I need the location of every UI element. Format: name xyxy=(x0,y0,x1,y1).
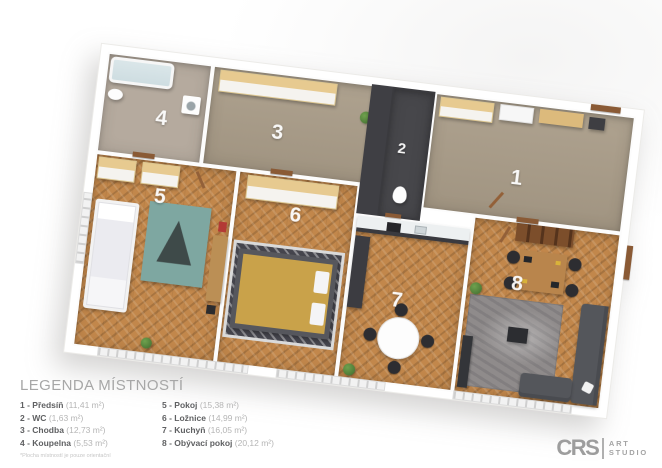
floor-plan-3d: 4 3 2 1 xyxy=(63,43,645,419)
logo-initials: CRS xyxy=(556,437,598,459)
bathtub xyxy=(108,56,175,90)
legend-item: 5 - Pokoj (15,38 m²) xyxy=(162,399,290,412)
entry-door-leaf xyxy=(488,192,504,209)
placemat xyxy=(523,256,532,263)
room-obyvaci-pokoj: 8 xyxy=(452,216,621,410)
desk-chair xyxy=(206,304,216,314)
legend-item-label: 7 - Kuchyň xyxy=(162,425,205,435)
hall-wardrobe xyxy=(218,70,338,106)
stove xyxy=(386,222,401,233)
entry-cabinet xyxy=(498,104,534,124)
legend-title: LEGENDA MÍSTNOSTÍ xyxy=(20,377,290,394)
entry-wardrobe xyxy=(438,97,494,123)
legend-item: 6 - Ložnice (14,99 m²) xyxy=(162,412,290,425)
wc-toilet xyxy=(392,186,408,205)
entry-shoe-rack xyxy=(588,117,605,131)
legend-item-label: 6 - Ložnice xyxy=(162,413,206,423)
mountain-rug xyxy=(140,201,211,288)
logo-divider xyxy=(602,438,604,459)
room-number-4: 4 xyxy=(154,106,169,131)
placemat xyxy=(551,282,560,289)
legend-column-2: 5 - Pokoj (15,38 m²) 6 - Ložnice (14,99 … xyxy=(162,399,290,449)
room-number-7: 7 xyxy=(389,288,404,313)
dining-chair xyxy=(363,327,377,341)
legend-item-area: (1,63 m²) xyxy=(49,413,83,423)
logo-wordmark: ART STUDIO xyxy=(609,439,648,458)
legend-item-area: (20,12 m²) xyxy=(235,438,274,448)
room-number-8: 8 xyxy=(510,272,525,297)
sofa-chaise xyxy=(518,373,573,403)
room-legend: LEGENDA MÍSTNOSTÍ 1 - Předsíň (11,41 m²)… xyxy=(20,377,290,459)
legend-item-label: 3 - Chodba xyxy=(20,425,64,435)
room-kuchyn: 7 xyxy=(336,213,472,392)
room-pokoj: 5 xyxy=(72,152,238,363)
legend-item: 1 - Předsíň (11,41 m²) xyxy=(20,399,148,412)
rug-artwork xyxy=(150,213,202,274)
legend-item: 2 - WC (1,63 m²) xyxy=(20,412,148,425)
napkin xyxy=(555,261,560,266)
legend-item-area: (5,53 m²) xyxy=(73,438,107,448)
room-loznice: 6 xyxy=(215,169,360,378)
legend-item-label: 4 - Koupelna xyxy=(20,438,71,448)
legend-item-label: 1 - Předsíň xyxy=(20,400,63,410)
dining-chair xyxy=(568,258,582,272)
room-number-2: 2 xyxy=(397,140,407,158)
legend-item: 7 - Kuchyň (16,05 m²) xyxy=(162,424,290,437)
legend-item-area: (15,38 m²) xyxy=(200,400,239,410)
logo-line-art: ART xyxy=(609,439,648,449)
legend-footnote: *Plocha místností je pouze orientační xyxy=(20,453,290,459)
legend-item-area: (11,41 m²) xyxy=(66,400,105,410)
kitchen-sink xyxy=(414,226,427,235)
washing-machine xyxy=(181,95,201,115)
legend-item-label: 2 - WC xyxy=(20,413,46,423)
coffee-table xyxy=(507,327,529,344)
bedroom5-cabinet-left xyxy=(97,156,137,182)
studio-logo: CRS ART STUDIO xyxy=(556,437,648,459)
bedroom5-plant xyxy=(140,337,152,349)
double-bed xyxy=(229,248,338,340)
canopy-bed xyxy=(83,198,140,313)
logo-line-studio: STUDIO xyxy=(609,448,648,458)
desk-red-box xyxy=(218,221,227,232)
room-koupelna: 4 xyxy=(96,52,214,165)
legend-item: 8 - Obývací pokoj (20,12 m²) xyxy=(162,437,290,450)
legend-item: 3 - Chodba (12,73 m²) xyxy=(20,424,148,437)
room-number-1: 1 xyxy=(509,166,524,191)
room-number-6: 6 xyxy=(288,203,303,228)
bed-pillow xyxy=(313,270,330,294)
legend-column-1: 1 - Předsíň (11,41 m²) 2 - WC (1,63 m²) … xyxy=(20,399,148,449)
kitchen-plant xyxy=(342,363,355,376)
entry-bench xyxy=(538,109,583,128)
legend-item-label: 5 - Pokoj xyxy=(162,400,197,410)
bed-pillow xyxy=(309,302,326,326)
entrance-door-frame xyxy=(591,104,622,114)
legend-item-label: 8 - Obývací pokoj xyxy=(162,438,232,448)
dining-chair xyxy=(420,334,434,348)
round-dining-table xyxy=(375,315,422,362)
apartment-outline: 4 3 2 1 xyxy=(63,43,645,419)
kitchen-worktop xyxy=(356,216,470,246)
room-predsin: 1 xyxy=(421,92,636,234)
room-number-3: 3 xyxy=(270,121,285,146)
dining-chair xyxy=(565,284,579,298)
legend-item-area: (14,99 m²) xyxy=(208,413,247,423)
legend-item-area: (12,73 m²) xyxy=(66,425,105,435)
dining-chair xyxy=(387,360,401,374)
legend-item-area: (16,05 m²) xyxy=(208,425,247,435)
wine-rack xyxy=(515,223,575,248)
legend-columns: 1 - Předsíň (11,41 m²) 2 - WC (1,63 m²) … xyxy=(20,399,290,449)
legend-item: 4 - Koupelna (5,53 m²) xyxy=(20,437,148,450)
bathroom-sink xyxy=(107,88,123,101)
